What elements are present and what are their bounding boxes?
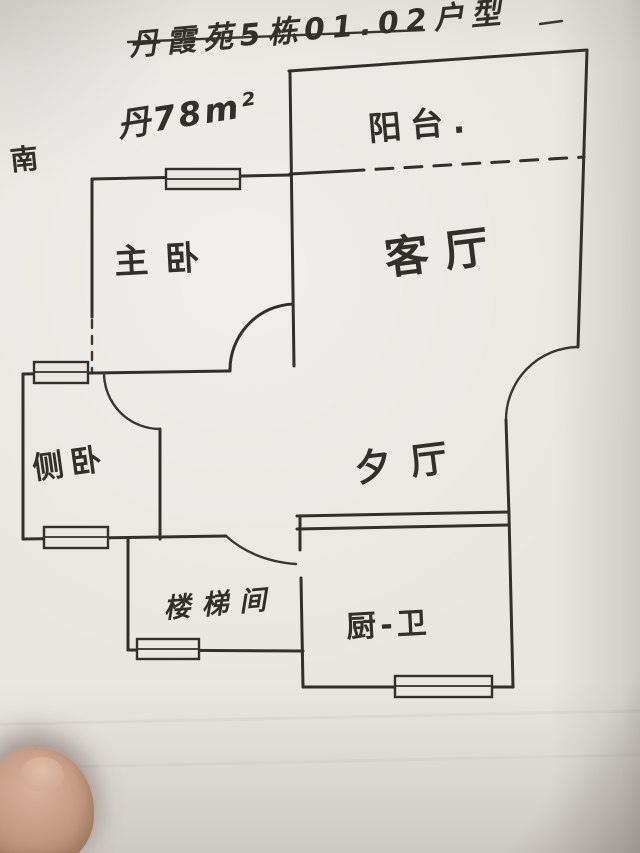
room-label-kitchen-bath: 厨-卫 [345,598,432,646]
window-master-top [166,169,240,189]
wall-kitchen-left [300,518,303,687]
wall-divider-top [297,512,509,516]
door-arc-living-dining [506,347,578,420]
fingernail [20,757,64,791]
compass-south-label: 南 [8,137,40,180]
room-label-master-bedroom: 主卧 [113,229,217,283]
wall-divider-bottom [297,525,509,529]
title-flourish-dash [540,21,562,24]
door-arc-side-bedroom [104,373,160,429]
wall-right-upper [578,50,587,347]
window-stair-bottom [137,639,199,659]
balcony-dashed-divider [347,157,584,171]
room-label-balcony: 阳台. [366,93,475,150]
door-arc-master-bedroom [230,304,293,371]
door-arc-stair-hall [226,536,296,564]
window-side-bottom [44,527,108,548]
wall-balcony-top [289,50,587,71]
window-side-top [34,362,88,383]
wall-dining-right [506,420,509,515]
wall-center-vertical [290,72,294,366]
wall-balcony-stub [290,171,347,174]
photo-of-floor-plan: 丹霞苑5栋01.02户型 丹78m² 南 阳台. 客厅 主卧 侧卧 夕厅 楼梯间… [0,0,640,853]
